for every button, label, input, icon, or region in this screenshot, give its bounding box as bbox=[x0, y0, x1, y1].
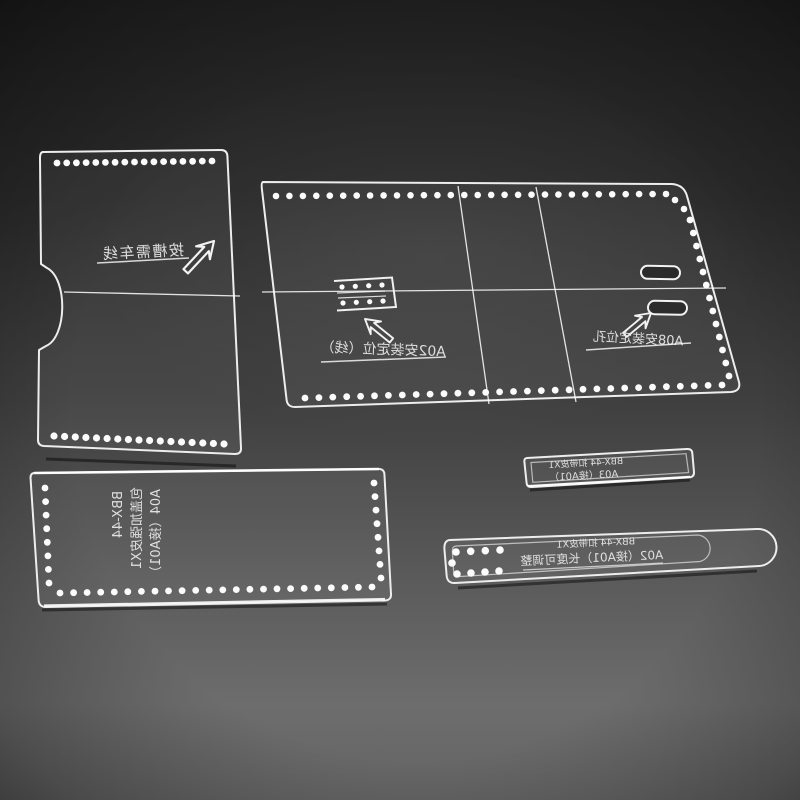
stitch-hole bbox=[649, 191, 656, 198]
product-photo: 按槽需车线 A02安装定位（线） A08安装定位孔 bbox=[0, 0, 800, 800]
stitch-hole bbox=[555, 191, 562, 198]
stitch-hole bbox=[468, 389, 475, 396]
engraving-model: BBX-44 bbox=[111, 491, 126, 538]
stitch-hole bbox=[399, 392, 406, 399]
stitch-hole bbox=[374, 520, 381, 527]
stitch-hole bbox=[448, 559, 456, 567]
stitch-hole bbox=[371, 480, 378, 487]
stitch-hole bbox=[474, 192, 481, 199]
stitch-hole bbox=[705, 382, 712, 389]
stitch-hole bbox=[496, 546, 504, 554]
stitch-hole bbox=[700, 269, 707, 276]
stitch-hole bbox=[313, 193, 320, 200]
stitch-hole bbox=[151, 158, 158, 165]
slot-cutout-lower bbox=[648, 301, 687, 315]
stitch-hole bbox=[371, 392, 378, 399]
stitch-hole bbox=[582, 191, 589, 198]
stitch-hole bbox=[607, 385, 614, 392]
template-piece-reinforcement-a04: BBX-44 包盖加强皮X1 A04（接A01） bbox=[31, 469, 392, 610]
stitch-hole bbox=[83, 159, 90, 166]
stitch-hole bbox=[373, 507, 380, 514]
stitch-hole bbox=[663, 191, 670, 198]
stitch-hole bbox=[719, 347, 726, 354]
stitch-hole bbox=[524, 388, 531, 395]
stitch-hole bbox=[355, 584, 362, 591]
stitch-hole bbox=[112, 159, 119, 166]
stitch-hole bbox=[482, 389, 489, 396]
stitch-hole bbox=[199, 158, 206, 165]
stitch-hole bbox=[70, 589, 77, 596]
stitch-hole bbox=[328, 584, 335, 591]
stitch-hole bbox=[170, 158, 177, 165]
stitch-hole bbox=[73, 159, 80, 166]
stitch-hole bbox=[481, 568, 489, 576]
stitch-hole bbox=[672, 197, 679, 204]
stitch-hole bbox=[515, 192, 522, 199]
stitch-hole bbox=[501, 192, 508, 199]
stitch-hole bbox=[596, 191, 603, 198]
stitch-hole bbox=[179, 587, 186, 594]
stitch-hole bbox=[206, 587, 213, 594]
stitch-hole bbox=[407, 192, 414, 199]
stitch-hole bbox=[141, 159, 148, 166]
stitch-hole bbox=[690, 230, 697, 237]
stitch-hole bbox=[286, 193, 293, 200]
stitch-hole bbox=[663, 383, 670, 390]
stitch-hole bbox=[461, 192, 468, 199]
stitch-hole bbox=[327, 192, 334, 199]
stitch-hole bbox=[343, 393, 350, 400]
stitch-hole bbox=[167, 438, 174, 445]
stitch-hole bbox=[180, 158, 187, 165]
stitch-hole bbox=[580, 386, 587, 393]
stitch-hole bbox=[716, 334, 723, 341]
stitch-hole bbox=[353, 192, 360, 199]
stitch-hole bbox=[63, 160, 70, 167]
stitch-hole bbox=[357, 393, 364, 400]
stitch-hole bbox=[353, 284, 358, 289]
stitch-hole bbox=[342, 584, 349, 591]
stitch-hole bbox=[189, 158, 196, 165]
stitch-hole bbox=[528, 191, 535, 198]
stitch-hole bbox=[114, 435, 121, 442]
stitch-hole bbox=[693, 243, 700, 250]
stitch-hole bbox=[566, 386, 573, 393]
stitch-hole bbox=[467, 548, 475, 556]
stitch-hole bbox=[273, 193, 280, 200]
stitch-hole bbox=[375, 534, 382, 541]
template-piece-body-left: 按槽需车线 bbox=[38, 150, 241, 466]
stitch-hole bbox=[677, 383, 684, 390]
piece-outline bbox=[262, 182, 740, 407]
stitch-hole bbox=[434, 192, 441, 199]
stitch-hole bbox=[713, 321, 720, 328]
stitch-hole bbox=[93, 434, 100, 441]
stitch-hole bbox=[274, 585, 281, 592]
template-piece-main-cover: A02安装定位（线） A08安装定位孔 bbox=[262, 182, 740, 407]
stitch-hole bbox=[542, 191, 549, 198]
stitch-hole bbox=[366, 283, 371, 288]
stitch-hole bbox=[57, 590, 64, 597]
stitch-hole bbox=[385, 392, 392, 399]
stitch-hole bbox=[340, 300, 345, 305]
stitch-hole bbox=[455, 390, 462, 397]
stitch-hole bbox=[84, 589, 91, 596]
stitch-hole bbox=[691, 383, 698, 390]
stitch-hole bbox=[302, 395, 309, 402]
stitch-hole bbox=[706, 295, 713, 302]
stitch-hole bbox=[104, 435, 111, 442]
stitch-hole bbox=[165, 588, 172, 595]
stitch-hole bbox=[314, 585, 321, 592]
stitch-hole bbox=[97, 589, 104, 596]
stitch-hole bbox=[209, 158, 216, 165]
stitch-hole bbox=[448, 192, 455, 199]
stitch-hole bbox=[192, 587, 199, 594]
stitch-hole bbox=[453, 570, 461, 578]
stitch-hole bbox=[703, 282, 710, 289]
stitch-hole bbox=[121, 159, 128, 166]
stitch-hole bbox=[340, 192, 347, 199]
stitch-hole bbox=[421, 192, 428, 199]
stitch-hole bbox=[379, 282, 384, 287]
stitch-hole bbox=[427, 391, 434, 398]
stitch-hole bbox=[687, 217, 694, 224]
stitch-hole bbox=[367, 299, 372, 304]
stitch-hole bbox=[42, 485, 49, 492]
stitch-hole bbox=[538, 387, 545, 394]
stitch-hole bbox=[496, 389, 503, 396]
stitch-hole bbox=[287, 585, 294, 592]
stitch-hole bbox=[394, 192, 401, 199]
stitch-hole bbox=[300, 193, 307, 200]
stitch-hole bbox=[45, 553, 52, 560]
stitch-hole bbox=[488, 192, 495, 199]
stitch-hole bbox=[124, 588, 131, 595]
stitch-hole bbox=[649, 384, 656, 391]
stitch-hole bbox=[42, 498, 49, 505]
stitch-hole bbox=[301, 585, 308, 592]
stitch-hole bbox=[329, 394, 336, 401]
stitch-hole bbox=[467, 569, 475, 577]
stitch-hole bbox=[339, 284, 344, 289]
stitch-hole bbox=[61, 433, 68, 440]
stitch-hole bbox=[681, 206, 688, 213]
stitch-hole bbox=[696, 256, 703, 263]
stitch-hole bbox=[609, 191, 616, 198]
stitch-hole bbox=[316, 394, 323, 401]
stitch-hole bbox=[50, 432, 57, 439]
stitch-hole bbox=[210, 440, 217, 447]
stitch-hole bbox=[247, 586, 254, 593]
stitch-hole bbox=[622, 191, 629, 198]
stitch-hole bbox=[125, 436, 132, 443]
stitch-hole bbox=[45, 566, 52, 573]
stitch-hole bbox=[636, 191, 643, 198]
stitch-hole bbox=[441, 390, 448, 397]
stitch-hole bbox=[43, 512, 50, 519]
stitch-hole bbox=[146, 437, 153, 444]
stitch-hole bbox=[719, 382, 726, 389]
stitch-hole bbox=[219, 587, 226, 594]
stitch-hole bbox=[709, 308, 716, 315]
stitch-hole bbox=[726, 373, 733, 380]
stitch-hole bbox=[92, 159, 99, 166]
stitch-hole bbox=[354, 300, 359, 305]
stitch-hole bbox=[152, 588, 159, 595]
stitch-hole bbox=[102, 159, 109, 166]
stitch-hole bbox=[413, 391, 420, 398]
stitch-hole bbox=[367, 192, 374, 199]
stitch-hole bbox=[233, 586, 240, 593]
piece-outline bbox=[38, 150, 241, 454]
stitch-hole bbox=[722, 360, 729, 367]
stitch-hole bbox=[452, 548, 460, 556]
stitch-hole bbox=[260, 586, 267, 593]
stitch-hole bbox=[635, 384, 642, 391]
stitch-hole bbox=[380, 298, 385, 303]
stitch-hole bbox=[44, 539, 51, 546]
stitch-hole bbox=[82, 434, 89, 441]
stitch-hole bbox=[621, 385, 628, 392]
stitch-hole bbox=[380, 192, 387, 199]
stitch-hole bbox=[220, 440, 227, 447]
stitch-hole bbox=[569, 191, 576, 198]
stitch-hole bbox=[135, 436, 142, 443]
stitch-hole bbox=[372, 493, 379, 500]
stitch-hole bbox=[552, 387, 559, 394]
stitch-hole bbox=[495, 567, 503, 575]
stitch-hole bbox=[510, 388, 517, 395]
stitch-hole bbox=[594, 386, 601, 393]
engraving-part-name: 包盖加强皮X1 bbox=[130, 487, 145, 569]
stitch-hole bbox=[131, 159, 138, 166]
stitch-hole bbox=[369, 584, 376, 591]
stitch-hole bbox=[376, 548, 383, 555]
stitch-hole bbox=[54, 160, 61, 167]
stitch-hole bbox=[46, 580, 53, 587]
engraving-part-code: A04（接A01） bbox=[148, 489, 164, 579]
stitch-hole bbox=[72, 433, 79, 440]
stitch-hole bbox=[157, 437, 164, 444]
stitch-hole bbox=[43, 525, 50, 532]
stitch-hole bbox=[189, 439, 196, 446]
piece-outline bbox=[31, 469, 392, 607]
stitch-hole bbox=[138, 588, 145, 595]
stitch-hole bbox=[160, 158, 167, 165]
stitch-hole bbox=[111, 589, 118, 596]
acrylic-template-photo: 按槽需车线 A02安装定位（线） A08安装定位孔 bbox=[0, 0, 800, 800]
stitch-hole bbox=[378, 575, 385, 582]
stitch-hole bbox=[199, 439, 206, 446]
stitch-hole bbox=[377, 561, 384, 568]
stitch-hole bbox=[482, 547, 490, 555]
stitch-hole bbox=[178, 438, 185, 445]
slot-cutout-upper bbox=[641, 266, 680, 280]
